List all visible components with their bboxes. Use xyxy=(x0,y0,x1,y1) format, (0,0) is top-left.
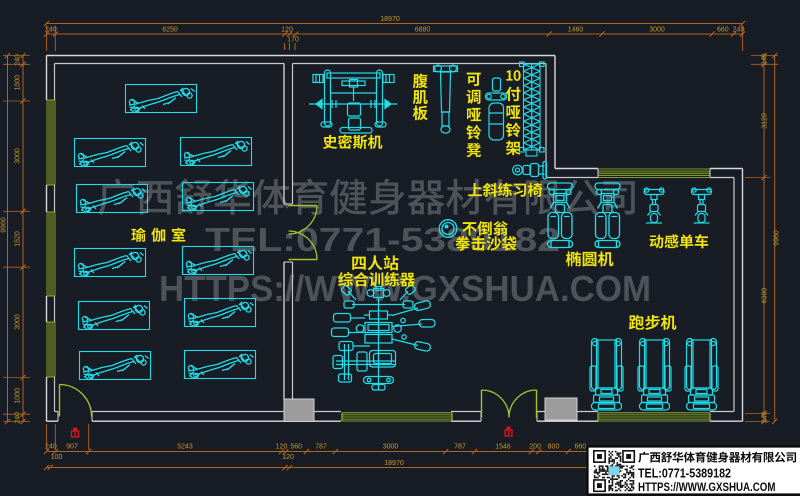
svg-text:170: 170 xyxy=(287,37,299,44)
svg-text:660: 660 xyxy=(574,444,586,451)
svg-text:800: 800 xyxy=(548,444,560,451)
svg-text:1520: 1520 xyxy=(15,231,22,247)
svg-text:787: 787 xyxy=(315,444,327,451)
svg-text:560: 560 xyxy=(290,444,302,451)
svg-text:787: 787 xyxy=(454,444,466,451)
svg-text:120: 120 xyxy=(282,454,294,461)
svg-text:9960: 9960 xyxy=(1,217,8,233)
svg-text:907: 907 xyxy=(66,444,78,451)
svg-text:TEL:0771-5389182: TEL:0771-5389182 xyxy=(638,466,731,481)
svg-text:100: 100 xyxy=(51,454,63,461)
svg-text:660: 660 xyxy=(717,27,729,34)
svg-text:120: 120 xyxy=(276,444,288,451)
svg-text:1000: 1000 xyxy=(15,75,22,91)
svg-text:TEL:0771-5389182: TEL:0771-5389182 xyxy=(205,221,560,258)
svg-text:1460: 1460 xyxy=(568,27,584,34)
svg-text:3000: 3000 xyxy=(649,27,665,34)
svg-text:200: 200 xyxy=(529,444,541,451)
svg-text:9960: 9960 xyxy=(774,230,781,246)
svg-text:3000: 3000 xyxy=(15,148,22,164)
svg-text:3000: 3000 xyxy=(383,444,399,451)
svg-text:3120: 3120 xyxy=(762,113,769,129)
svg-text:5243: 5243 xyxy=(177,444,193,451)
svg-text:6380: 6380 xyxy=(762,288,769,304)
svg-text:6880: 6880 xyxy=(415,27,431,34)
svg-text:HTTPS://WWW.GXSHUA.COM: HTTPS://WWW.GXSHUA.COM xyxy=(638,480,776,494)
svg-text:18970: 18970 xyxy=(384,460,404,467)
svg-text:1546: 1546 xyxy=(495,444,511,451)
svg-text:3000: 3000 xyxy=(15,314,22,330)
svg-text:18970: 18970 xyxy=(380,16,400,23)
svg-text:120: 120 xyxy=(281,27,293,34)
svg-text:6250: 6250 xyxy=(162,27,178,34)
svg-text:1000: 1000 xyxy=(15,388,22,404)
